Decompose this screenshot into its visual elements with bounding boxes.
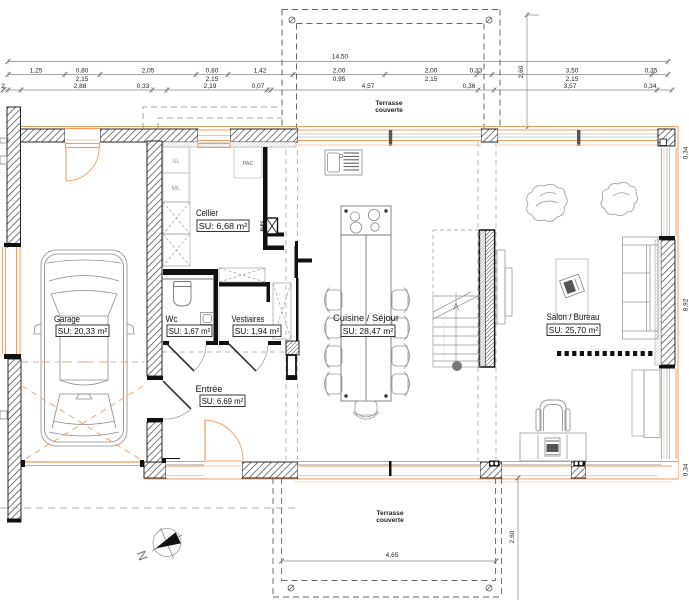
svg-text:couverte: couverte <box>376 517 404 524</box>
svg-text:SU: 1,67 m²: SU: 1,67 m² <box>169 326 211 336</box>
svg-text:2,88: 2,88 <box>74 83 87 90</box>
svg-text:0,34: 0,34 <box>683 146 689 159</box>
svg-text:SU: 6,69 m²: SU: 6,69 m² <box>202 396 244 406</box>
svg-text:0,36: 0,36 <box>463 83 476 90</box>
svg-text:couverte: couverte <box>375 107 403 114</box>
svg-text:0,33: 0,33 <box>470 68 483 75</box>
svg-text:0,07: 0,07 <box>252 83 265 90</box>
svg-text:Vestiaires: Vestiaires <box>232 314 265 324</box>
svg-text:SU: 20,33 m²: SU: 20,33 m² <box>58 326 108 336</box>
svg-text:0,35: 0,35 <box>645 68 658 75</box>
svg-text:2,00: 2,00 <box>333 68 346 75</box>
svg-text:14,50: 14,50 <box>332 54 349 61</box>
svg-text:Cellier: Cellier <box>196 208 218 218</box>
svg-text:8,92: 8,92 <box>683 298 689 311</box>
svg-text:1,42: 1,42 <box>254 68 267 75</box>
svg-text:ML: ML <box>171 185 180 192</box>
svg-text:Garage: Garage <box>54 314 80 324</box>
svg-text:2,19: 2,19 <box>204 83 217 90</box>
svg-text:SU: 28,47 m²: SU: 28,47 m² <box>343 326 394 336</box>
svg-text:PAC: PAC <box>243 161 254 167</box>
svg-text:3,57: 3,57 <box>564 83 577 90</box>
svg-text:4,57: 4,57 <box>362 83 375 90</box>
svg-text:2,05: 2,05 <box>142 68 155 75</box>
svg-text:3,50: 3,50 <box>566 68 579 75</box>
svg-text:SU: 25,70 m²: SU: 25,70 m² <box>549 325 599 335</box>
svg-text:0,95: 0,95 <box>333 76 346 83</box>
svg-text:Salon / Bureau: Salon / Bureau <box>547 312 600 322</box>
svg-text:0,34: 0,34 <box>683 463 689 476</box>
svg-text:Entrée: Entrée <box>196 384 223 394</box>
svg-text:ELEC: ELEC <box>259 221 264 232</box>
svg-text:SU: 6,68 m²: SU: 6,68 m² <box>199 221 248 231</box>
svg-text:0,33: 0,33 <box>137 83 150 90</box>
svg-text:Terrasse: Terrasse <box>375 100 402 107</box>
svg-text:2,15: 2,15 <box>425 76 438 83</box>
svg-text:2,60: 2,60 <box>509 530 516 543</box>
svg-text:SU: 1,94 m²: SU: 1,94 m² <box>235 326 280 336</box>
svg-text:1,25: 1,25 <box>30 68 43 75</box>
svg-text:2,00: 2,00 <box>425 68 438 75</box>
svg-text:2,: 2, <box>1 83 7 90</box>
svg-text:Cuisine / Séjour: Cuisine / Séjour <box>333 313 399 323</box>
svg-text:SL: SL <box>172 158 180 165</box>
svg-text:4,65: 4,65 <box>386 552 399 559</box>
svg-text:0,80: 0,80 <box>76 68 89 75</box>
svg-text:Wc: Wc <box>166 314 178 324</box>
svg-text:2,60: 2,60 <box>518 65 525 78</box>
svg-text:0,80: 0,80 <box>206 68 219 75</box>
svg-text:Terrasse: Terrasse <box>376 510 403 517</box>
svg-text:0,34: 0,34 <box>644 83 657 90</box>
